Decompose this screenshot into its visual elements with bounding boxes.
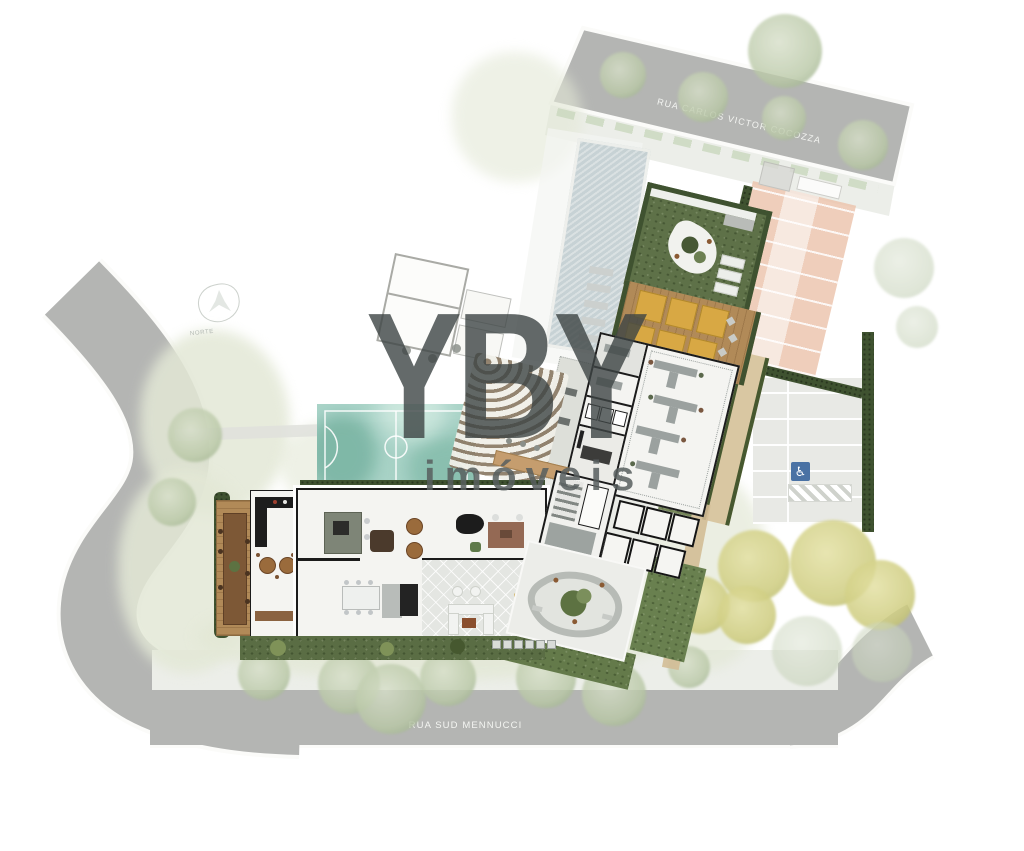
garden-lounger xyxy=(713,282,739,297)
tree xyxy=(874,238,934,298)
planter-row xyxy=(492,640,556,649)
accessible-parking-icon: ♿ xyxy=(791,462,810,481)
wood-bench xyxy=(255,611,293,621)
elevator-cell xyxy=(667,513,700,548)
wall xyxy=(298,558,360,561)
table-centerpiece xyxy=(229,561,240,572)
deck-lounger xyxy=(665,297,699,331)
cooktop xyxy=(333,521,349,535)
armchair xyxy=(492,514,499,521)
compass-label: NORTE xyxy=(190,329,214,337)
bar-room xyxy=(250,490,298,638)
chair xyxy=(275,575,279,579)
parking-lot-gray xyxy=(753,378,863,524)
stool xyxy=(218,585,223,590)
tree xyxy=(600,52,646,98)
deck-chair xyxy=(718,347,728,357)
watermark-brand: YBY xyxy=(366,300,643,453)
garden-lounger xyxy=(720,254,746,269)
tree xyxy=(748,14,822,88)
tree xyxy=(772,616,842,686)
chair xyxy=(256,553,260,557)
tree xyxy=(838,120,888,170)
fridge xyxy=(400,584,418,616)
planter-box xyxy=(547,640,556,649)
tree xyxy=(148,478,196,526)
round-table xyxy=(406,542,423,559)
bar-item xyxy=(283,500,287,504)
planter-box xyxy=(514,640,523,649)
bar-item xyxy=(273,500,277,504)
outdoor-sofa xyxy=(483,613,494,635)
north-compass-icon: NORTE xyxy=(186,278,256,342)
chair xyxy=(368,580,373,585)
round-table xyxy=(406,518,423,535)
chair xyxy=(364,518,370,524)
armchair xyxy=(470,586,481,597)
tree xyxy=(168,408,222,462)
parking-aisle-line xyxy=(787,378,789,524)
chair xyxy=(344,610,349,615)
kitchen-counter xyxy=(382,584,402,618)
tree xyxy=(852,622,912,682)
lounge-rug xyxy=(488,522,524,548)
hatched-no-parking xyxy=(788,484,852,502)
elevator-cell xyxy=(653,545,686,580)
tree-yellow xyxy=(718,586,776,644)
bush xyxy=(380,642,394,656)
garden-lounger xyxy=(717,268,743,283)
chair xyxy=(368,610,373,615)
chair xyxy=(356,580,361,585)
round-table xyxy=(259,557,276,574)
coffee-table xyxy=(462,618,476,628)
watermark-tagline: imóveis xyxy=(424,452,643,500)
planter-box xyxy=(492,640,501,649)
bush xyxy=(450,639,465,654)
pouf xyxy=(470,542,481,552)
deck-chair xyxy=(726,317,736,327)
bar-counter xyxy=(255,497,267,547)
hedge xyxy=(862,332,874,532)
stool xyxy=(218,549,223,554)
armchair xyxy=(452,586,463,597)
tree xyxy=(678,72,728,122)
stool xyxy=(218,529,223,534)
chair xyxy=(344,580,349,585)
chair xyxy=(291,553,295,557)
game-table xyxy=(370,530,394,552)
coffee-table xyxy=(500,530,512,538)
deck-lounger xyxy=(696,305,730,339)
planter-box xyxy=(503,640,512,649)
tree xyxy=(356,664,426,734)
dining-table xyxy=(342,586,380,610)
site-plan: RUA CARLOS VICTOR COCOZZA RUA SUD MENNUC… xyxy=(0,0,1024,851)
armchair xyxy=(516,514,523,521)
bush xyxy=(270,640,286,656)
chair xyxy=(356,610,361,615)
planter-box xyxy=(525,640,534,649)
planter-box xyxy=(536,640,545,649)
pergola-deck xyxy=(216,500,252,636)
grand-piano xyxy=(456,514,484,534)
deck-chair xyxy=(728,333,738,343)
tree xyxy=(762,96,806,140)
outdoor-sofa xyxy=(448,613,459,635)
tree-yellow xyxy=(845,560,915,630)
kitchen-island xyxy=(324,512,362,554)
tree xyxy=(896,306,938,348)
round-table xyxy=(279,557,296,574)
